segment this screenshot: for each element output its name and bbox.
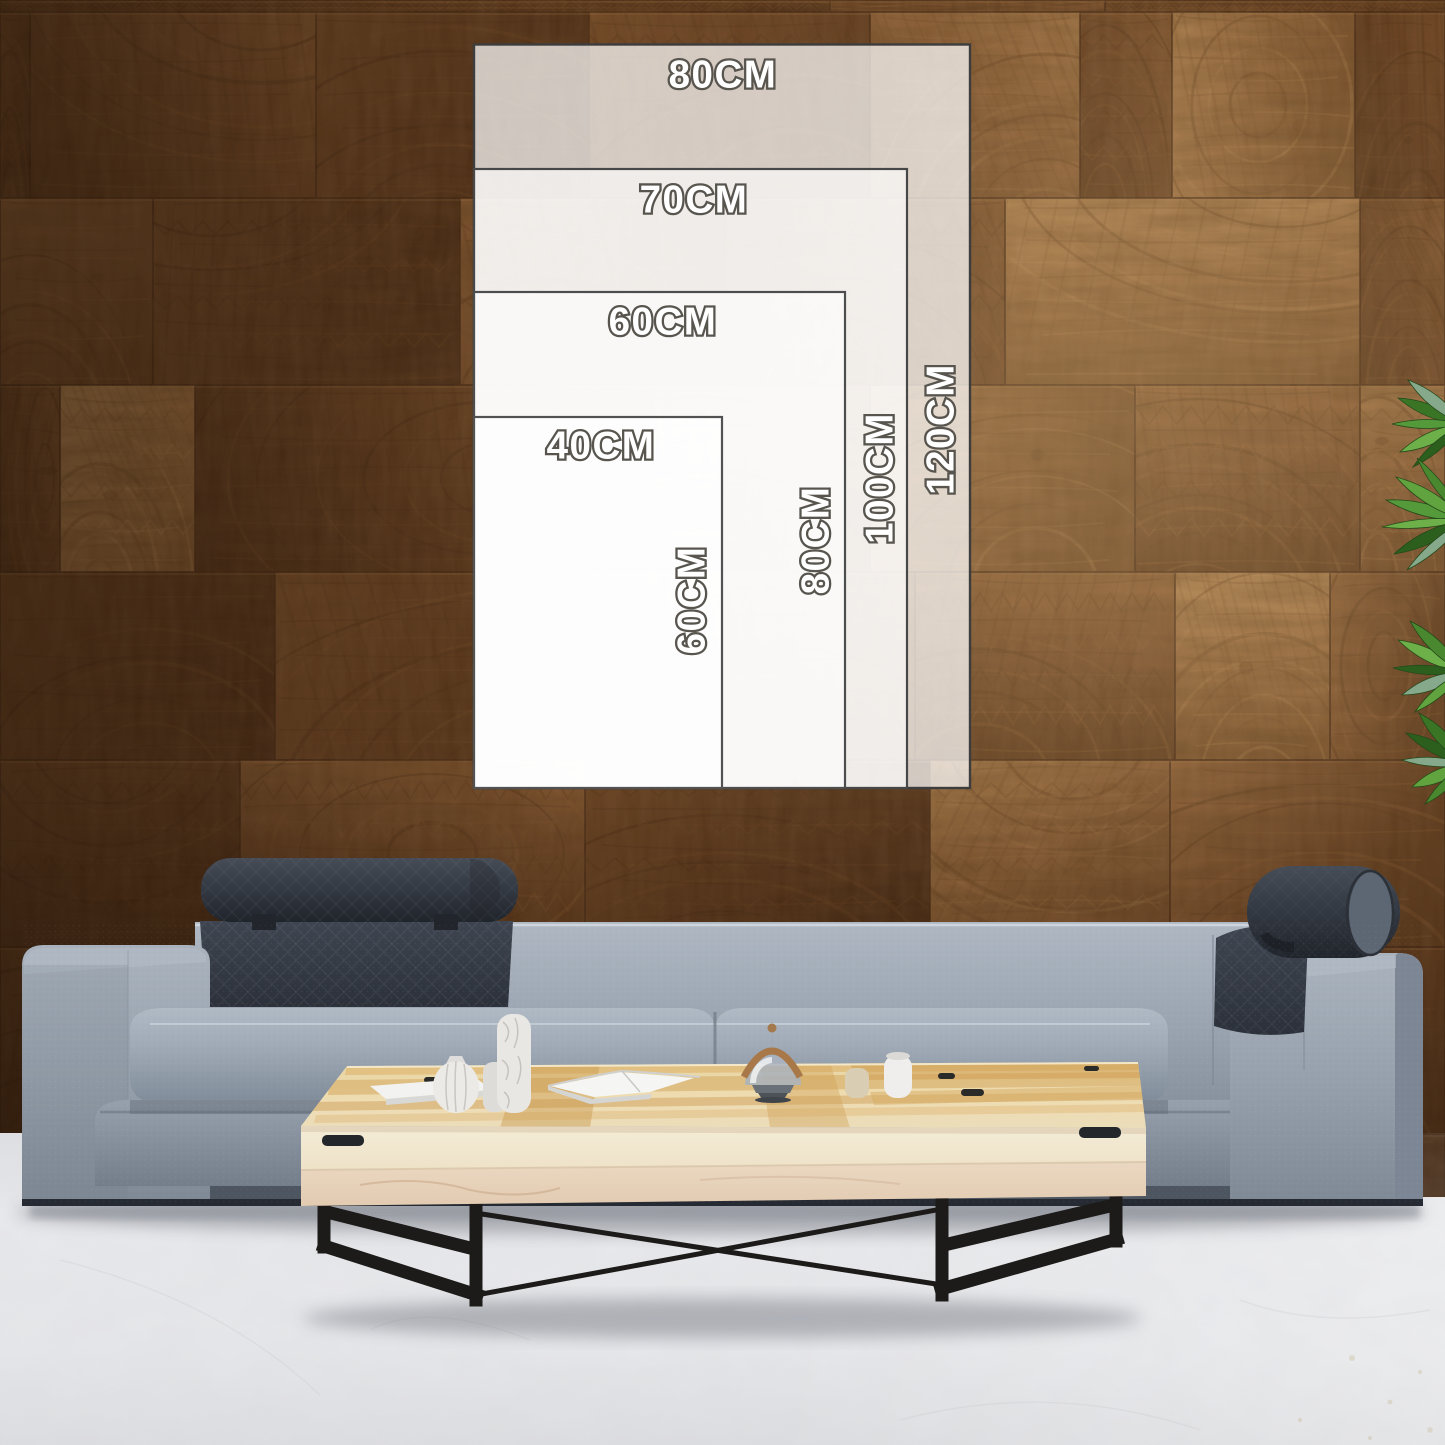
svg-text:100CM: 100CM xyxy=(859,412,902,544)
svg-text:80CM: 80CM xyxy=(669,54,778,97)
svg-text:120CM: 120CM xyxy=(920,363,963,495)
svg-text:60CM: 60CM xyxy=(671,546,714,655)
svg-text:40CM: 40CM xyxy=(547,425,656,468)
svg-text:80CM: 80CM xyxy=(795,486,838,595)
svg-text:60CM: 60CM xyxy=(609,301,718,344)
svg-text:70CM: 70CM xyxy=(640,179,749,222)
